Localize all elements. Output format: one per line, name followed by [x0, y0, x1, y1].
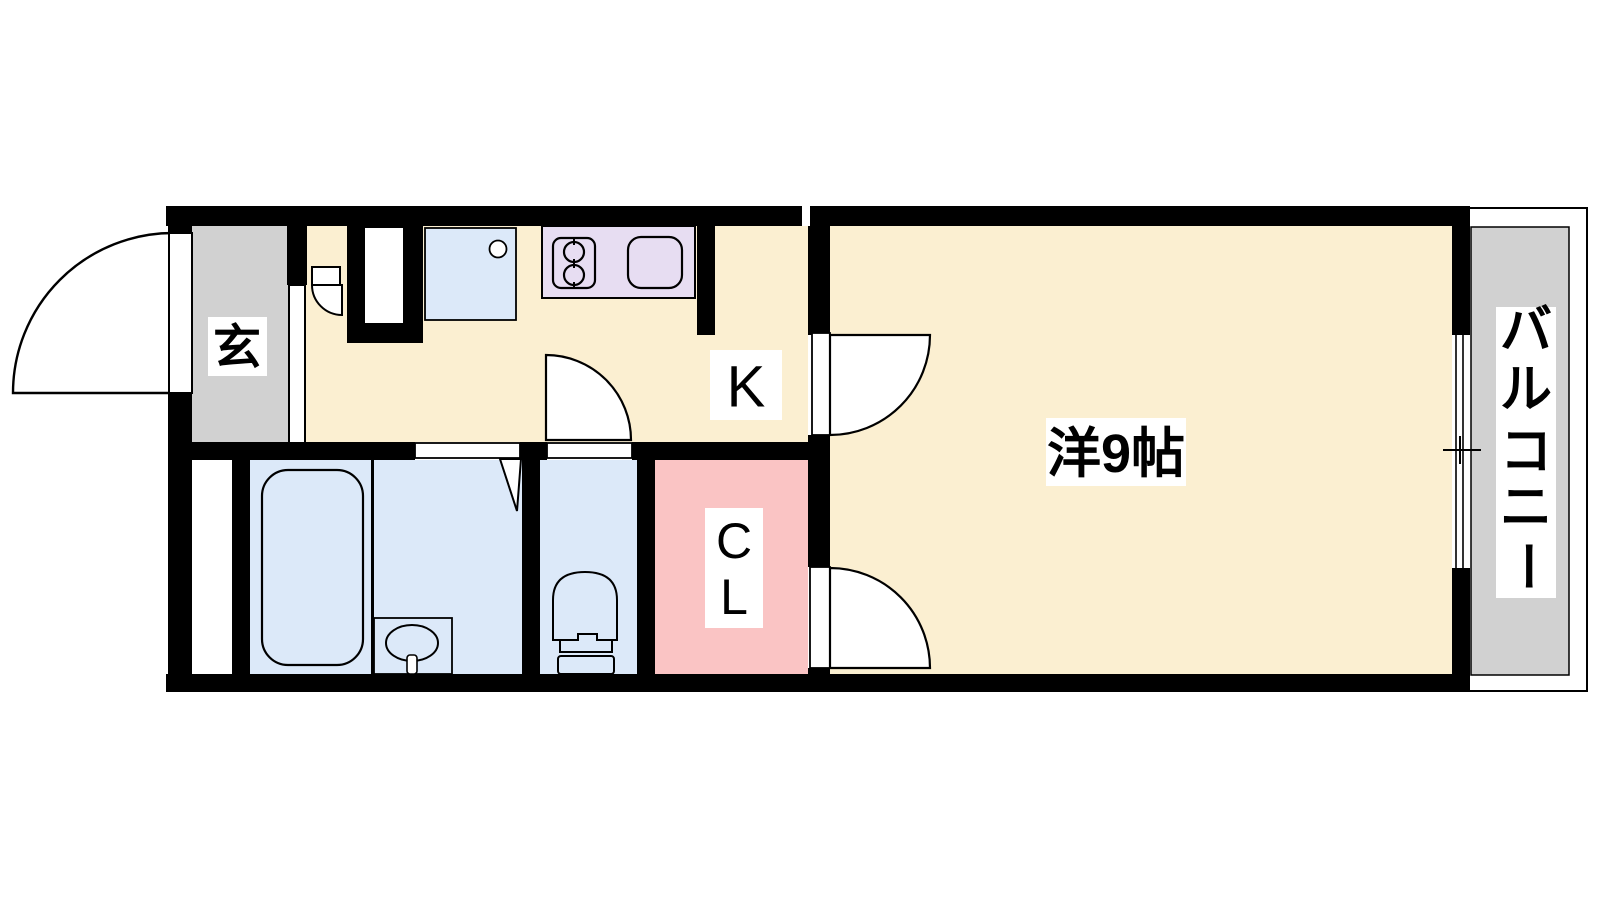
- entrance-label: 玄: [213, 322, 261, 375]
- wall-top: [166, 206, 1470, 226]
- storage-niche: [365, 228, 403, 323]
- toilet-tank: [558, 656, 614, 674]
- western-room-door2-leaf: [810, 567, 830, 668]
- closet-label-c: C: [716, 513, 752, 569]
- wall-right-lower: [1452, 568, 1470, 674]
- wall-hall-bath-mid: [520, 442, 547, 460]
- entrance-step-edge: [289, 285, 305, 443]
- balcony-label-char-4: ニ: [1500, 479, 1552, 537]
- wall-toilet-closet: [637, 460, 655, 674]
- shoe-cupboard-door-leaf: [312, 267, 340, 285]
- balcony-label-char-1: バ: [1500, 302, 1552, 360]
- washbasin-tap: [407, 655, 417, 674]
- wall-left-lower: [168, 393, 192, 692]
- wall-washroom-toilet: [522, 460, 540, 674]
- balcony-label-char-2: ル: [1500, 361, 1552, 419]
- bathtub: [262, 470, 363, 665]
- entrance-door-opening: [169, 233, 192, 393]
- wall-top-joint-gap: [802, 206, 810, 226]
- wall-counter-end: [697, 226, 715, 335]
- balcony-label-char-5: ー: [1497, 540, 1555, 592]
- western-room-door1-leaf: [812, 333, 830, 435]
- balcony-label-char-3: コ: [1500, 423, 1552, 481]
- washing-machine-faucet: [490, 241, 507, 258]
- floorplan-page: バ ル コ ニ ー: [0, 0, 1600, 900]
- wall-ps-right: [232, 460, 250, 674]
- wall-kitchen-western-upper: [808, 226, 830, 335]
- wall-kitchen-western-lower: [808, 668, 830, 674]
- toilet-bowl: [553, 572, 617, 640]
- wall-left-upper: [168, 206, 192, 233]
- wall-entrance-stub: [287, 226, 307, 285]
- wall-kitchen-western-mid: [808, 435, 830, 567]
- wall-bottom: [166, 674, 1470, 692]
- toilet-door-opening: [547, 443, 632, 458]
- sink: [628, 237, 682, 288]
- kitchen-label: K: [727, 355, 766, 420]
- western-room-label: 洋9帖: [1047, 424, 1185, 484]
- wall-hall-closet-top: [632, 442, 830, 460]
- wall-right-upper: [1452, 226, 1470, 335]
- washroom-door-opening: [415, 443, 520, 458]
- floorplan-drawing: バ ル コ ニ ー: [0, 0, 1600, 900]
- entrance-door-swing: [13, 233, 173, 393]
- wall-hall-bath-left: [192, 442, 415, 460]
- closet-label-l: L: [720, 569, 748, 625]
